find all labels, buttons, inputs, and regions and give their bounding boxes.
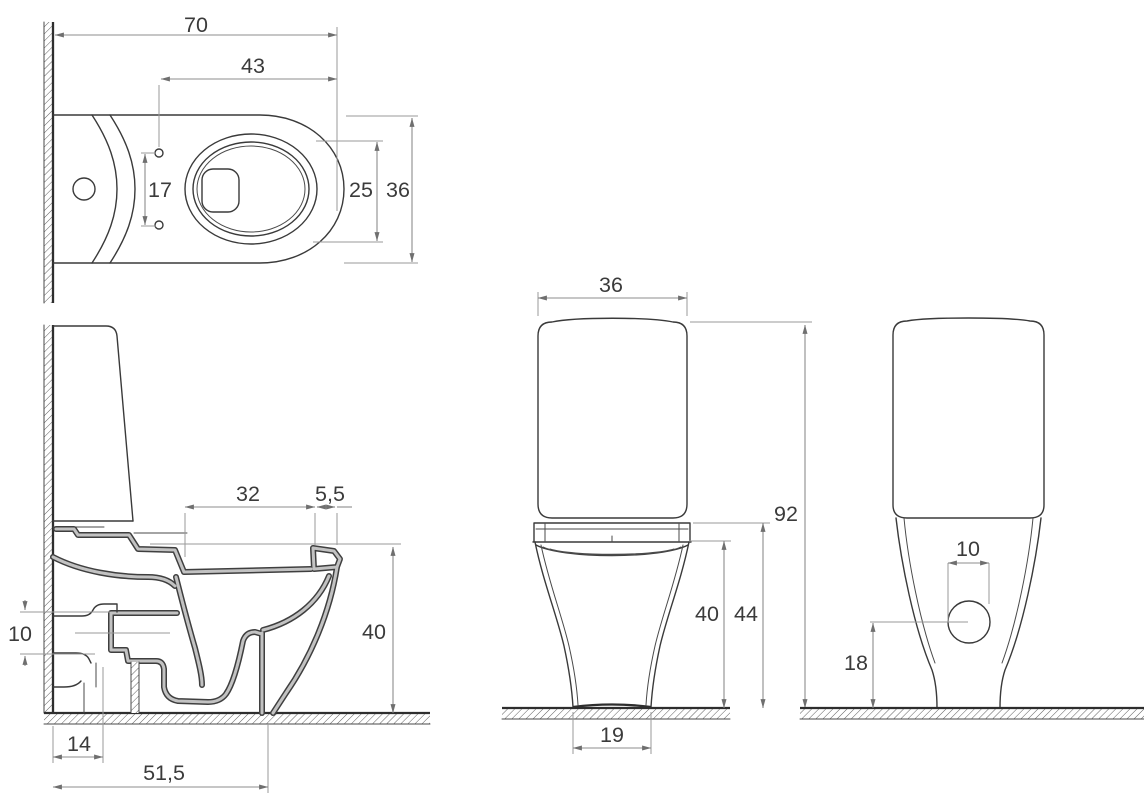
- dim-back-outlet-width: 10: [956, 537, 980, 561]
- seat-outline-outer: [185, 134, 317, 244]
- technical-drawing: 70 43 17 25 36: [0, 0, 1144, 800]
- toilet-plan-outline: [53, 115, 344, 263]
- dim-top-depth: 70: [184, 13, 208, 37]
- dim-top-bolt-spacing: 17: [148, 178, 172, 202]
- drawing-canvas: 70 43 17 25 36: [0, 0, 1144, 800]
- dim-front-base-width: 19: [600, 723, 624, 747]
- cistern-front-outline: [538, 318, 687, 518]
- dim-front-bowl-height: 40: [695, 602, 719, 626]
- seat-band-front: [533, 523, 691, 542]
- dim-front-width: 36: [599, 273, 623, 297]
- dim-front-seat-height: 44: [734, 602, 758, 626]
- dim-back-outlet-height: 18: [844, 651, 868, 675]
- flush-outlet-plan: [202, 169, 239, 212]
- back-view-dimensions: 10 18: [844, 537, 989, 708]
- bolt-hole-top: [155, 149, 163, 157]
- floor-section-side: [44, 713, 430, 724]
- bowl-rim-plan: [197, 146, 305, 232]
- front-view: 36 92 44 40 19: [502, 273, 812, 754]
- floor-section-back: [800, 708, 1144, 719]
- cistern-side-outline: [53, 326, 187, 533]
- dim-side-outlet-size: 10: [8, 622, 32, 646]
- foot-shadow-front: [573, 705, 651, 708]
- top-view-dimensions: 70 43 17 25 36: [55, 13, 418, 263]
- bowl-front-outline: [535, 542, 689, 707]
- dim-side-bowl-height: 40: [362, 620, 386, 644]
- dim-front-total-height: 92: [774, 502, 798, 526]
- dim-side-rim-width: 5,5: [315, 482, 345, 506]
- dim-top-seat-depth: 43: [241, 54, 265, 78]
- seat-outline-inner: [193, 142, 309, 236]
- cistern-back-outline: [893, 318, 1044, 518]
- dim-side-outlet-center: 14: [67, 732, 91, 756]
- flush-button-plan: [73, 178, 95, 200]
- front-view-dimensions: 36 92 44 40 19: [538, 273, 812, 754]
- pedestal-front-wall-section: [131, 662, 139, 713]
- top-view: 70 43 17 25 36: [44, 13, 418, 303]
- back-view: 10 18: [800, 318, 1144, 719]
- wall-section-top: [44, 22, 53, 303]
- dim-side-seat-opening: 32: [236, 482, 260, 506]
- floor-section-front: [502, 708, 730, 719]
- dim-top-bowl-inner-width: 25: [349, 178, 373, 202]
- side-view: 32 5,5 40 10 14 51,5: [8, 325, 430, 793]
- dim-top-width: 36: [386, 178, 410, 202]
- dim-side-trap-center: 51,5: [143, 761, 185, 785]
- bolt-hole-bottom: [155, 221, 163, 229]
- wall-section-side: [44, 325, 53, 713]
